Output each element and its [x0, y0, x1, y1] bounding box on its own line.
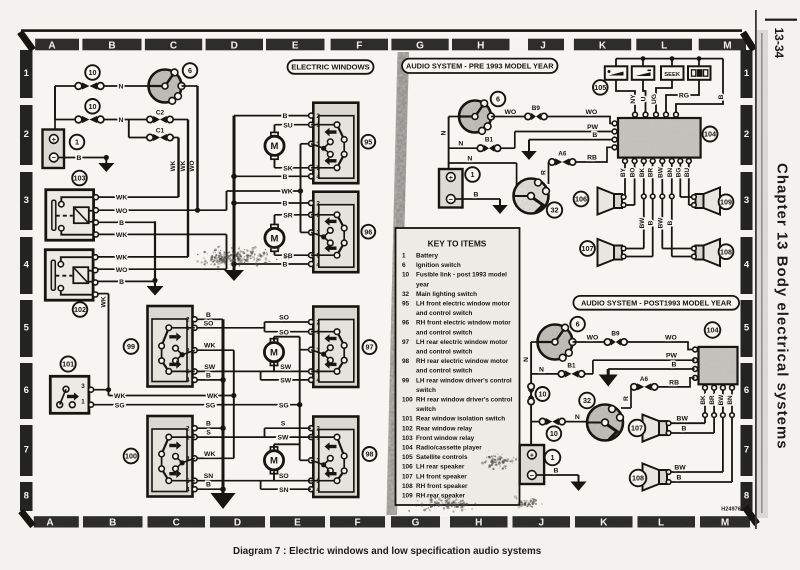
- svg-text:B: B: [77, 155, 82, 162]
- svg-text:BW: BW: [657, 217, 664, 229]
- svg-text:−: −: [52, 153, 57, 162]
- svg-text:4: 4: [24, 260, 30, 271]
- svg-text:1: 1: [744, 68, 750, 79]
- svg-text:1: 1: [81, 399, 85, 406]
- svg-text:99: 99: [127, 342, 135, 351]
- svg-text:108: 108: [720, 247, 732, 256]
- svg-text:98: 98: [366, 450, 374, 459]
- svg-text:97: 97: [366, 343, 374, 352]
- svg-text:103: 103: [74, 174, 86, 183]
- svg-text:97: 97: [402, 339, 410, 346]
- svg-text:WK: WK: [204, 343, 215, 350]
- svg-text:10: 10: [550, 429, 558, 438]
- svg-text:M: M: [270, 456, 278, 467]
- svg-text:6: 6: [188, 66, 192, 75]
- svg-text:B: B: [677, 475, 682, 482]
- svg-text:10: 10: [402, 272, 410, 279]
- svg-text:BN: BN: [667, 168, 674, 178]
- svg-text:5: 5: [24, 323, 30, 334]
- svg-text:WO: WO: [189, 160, 196, 171]
- svg-text:6: 6: [24, 385, 29, 396]
- svg-text:RH front speaker: RH front speaker: [416, 483, 468, 490]
- svg-text:BR: BR: [648, 168, 655, 178]
- svg-text:WO: WO: [504, 109, 516, 116]
- svg-text:2: 2: [186, 317, 190, 324]
- svg-text:SG: SG: [205, 402, 215, 409]
- svg-text:106: 106: [402, 464, 413, 471]
- svg-text:R: R: [540, 170, 547, 175]
- svg-text:B: B: [206, 312, 211, 319]
- svg-text:KEY TO ITEMS: KEY TO ITEMS: [428, 239, 487, 249]
- svg-text:Rear window isolation switch: Rear window isolation switch: [416, 416, 505, 423]
- svg-text:+: +: [449, 173, 454, 182]
- svg-text:WK: WK: [116, 195, 127, 202]
- svg-text:M: M: [270, 348, 278, 359]
- svg-text:B: B: [667, 220, 674, 225]
- svg-text:S: S: [206, 430, 211, 437]
- svg-text:B1: B1: [567, 362, 576, 369]
- svg-text:B: B: [681, 426, 686, 433]
- svg-text:A6: A6: [640, 376, 649, 383]
- svg-text:2: 2: [744, 129, 749, 140]
- svg-text:UG: UG: [651, 94, 658, 104]
- svg-text:6: 6: [402, 262, 406, 269]
- svg-text:WK: WK: [101, 296, 108, 307]
- svg-text:SW: SW: [278, 435, 290, 442]
- svg-text:7: 7: [744, 445, 749, 456]
- svg-text:2: 2: [24, 129, 29, 140]
- svg-text:Fusible link - post 1993 model: Fusible link - post 1993 model: [416, 272, 507, 279]
- svg-text:105: 105: [594, 83, 606, 92]
- svg-text:and control switch: and control switch: [416, 329, 473, 336]
- svg-text:M: M: [271, 233, 279, 244]
- svg-text:32: 32: [583, 396, 591, 405]
- svg-text:WK: WK: [170, 160, 177, 171]
- svg-text:SK: SK: [283, 165, 293, 172]
- svg-text:BU: BU: [684, 168, 691, 178]
- svg-text:Satellite controls: Satellite controls: [416, 454, 468, 461]
- svg-text:96: 96: [402, 320, 410, 327]
- svg-text:B: B: [119, 279, 124, 286]
- svg-text:4: 4: [316, 261, 320, 268]
- svg-text:BW: BW: [718, 394, 725, 406]
- svg-text:Battery: Battery: [416, 253, 438, 260]
- svg-text:SW: SW: [280, 378, 292, 385]
- svg-text:N: N: [539, 366, 544, 373]
- svg-text:LH front electric window motor: LH front electric window motor: [416, 301, 511, 308]
- svg-text:N: N: [467, 156, 472, 163]
- svg-text:BW: BW: [639, 217, 646, 229]
- svg-text:B: B: [283, 174, 288, 181]
- svg-text:N: N: [575, 414, 580, 421]
- svg-text:LH rear window driver's contro: LH rear window driver's control: [416, 377, 512, 384]
- svg-text:Rear window relay: Rear window relay: [416, 425, 473, 432]
- svg-text:Radio/cassette player: Radio/cassette player: [416, 445, 482, 452]
- svg-text:104: 104: [704, 130, 716, 139]
- svg-text:7: 7: [24, 445, 29, 456]
- svg-text:3: 3: [81, 383, 85, 390]
- svg-text:+: +: [52, 135, 57, 144]
- svg-text:N: N: [458, 141, 463, 148]
- svg-text:B: B: [283, 113, 288, 120]
- svg-text:SU: SU: [283, 122, 293, 129]
- svg-text:C2: C2: [156, 110, 165, 117]
- svg-text:6: 6: [744, 385, 749, 396]
- svg-text:103: 103: [402, 435, 413, 442]
- svg-text:RH front electric window motor: RH front electric window motor: [416, 320, 511, 327]
- svg-text:106: 106: [575, 195, 587, 204]
- svg-text:8: 8: [744, 491, 749, 502]
- svg-text:100: 100: [125, 452, 137, 461]
- svg-text:1: 1: [551, 453, 555, 462]
- svg-text:Diagram 7 : Electric windows a: Diagram 7 : Electric windows and low spe…: [233, 546, 542, 557]
- svg-text:1: 1: [75, 138, 79, 147]
- svg-text:4: 4: [316, 487, 320, 494]
- svg-text:B1: B1: [485, 136, 494, 143]
- svg-text:B: B: [648, 220, 655, 225]
- svg-text:LH rear speaker: LH rear speaker: [416, 464, 465, 471]
- svg-text:B: B: [206, 421, 211, 428]
- svg-text:RB: RB: [669, 379, 679, 386]
- svg-text:B: B: [206, 482, 211, 489]
- svg-text:N: N: [119, 117, 124, 124]
- svg-text:year: year: [416, 281, 430, 288]
- svg-text:−: −: [449, 195, 454, 204]
- svg-text:B: B: [592, 132, 597, 139]
- svg-text:WK: WK: [116, 255, 127, 262]
- svg-text:102: 102: [402, 425, 413, 432]
- svg-text:8: 8: [24, 491, 29, 502]
- svg-text:96: 96: [364, 227, 372, 236]
- svg-text:B: B: [119, 220, 124, 227]
- svg-text:SO: SO: [279, 473, 289, 480]
- svg-text:RB: RB: [587, 155, 597, 162]
- svg-text:N: N: [441, 130, 448, 135]
- svg-text:WO: WO: [585, 109, 597, 116]
- svg-text:2: 2: [316, 426, 320, 433]
- svg-text:1: 1: [24, 68, 30, 79]
- svg-text:SO: SO: [279, 329, 289, 336]
- svg-text:4: 4: [186, 377, 190, 384]
- svg-text:Ignition switch: Ignition switch: [416, 262, 461, 269]
- svg-text:WK: WK: [116, 232, 127, 239]
- svg-text:B: B: [474, 192, 479, 199]
- svg-text:4: 4: [316, 174, 320, 181]
- svg-text:BR: BR: [709, 395, 716, 405]
- svg-text:107: 107: [582, 244, 594, 253]
- svg-text:LH front speaker: LH front speaker: [416, 473, 467, 480]
- svg-text:SR: SR: [283, 212, 293, 219]
- svg-text:1: 1: [402, 253, 406, 260]
- svg-text:3: 3: [744, 195, 749, 206]
- svg-text:switch: switch: [416, 387, 436, 394]
- svg-text:WO: WO: [116, 208, 128, 215]
- svg-text:105: 105: [402, 454, 413, 461]
- svg-text:BN: BN: [727, 395, 734, 405]
- svg-text:BW: BW: [674, 465, 686, 472]
- svg-text:2: 2: [316, 200, 320, 207]
- svg-text:PW: PW: [587, 124, 599, 131]
- svg-text:−: −: [530, 471, 535, 480]
- svg-text:BK: BK: [700, 395, 707, 405]
- svg-text:B9: B9: [532, 105, 541, 112]
- svg-text:RG: RG: [679, 93, 689, 100]
- svg-text:AUDIO SYSTEM - PRE 1993 MODEL: AUDIO SYSTEM - PRE 1993 MODEL YEAR: [406, 62, 554, 71]
- svg-text:N: N: [119, 84, 124, 91]
- svg-text:BW: BW: [657, 166, 664, 178]
- svg-text:BY: BY: [620, 167, 627, 177]
- svg-text:95: 95: [364, 137, 372, 146]
- svg-text:10: 10: [89, 68, 97, 77]
- svg-text:1: 1: [471, 170, 475, 179]
- svg-text:B: B: [206, 372, 211, 379]
- svg-text:WK: WK: [207, 393, 218, 400]
- svg-text:SN: SN: [279, 487, 289, 494]
- svg-text:SO: SO: [279, 315, 289, 322]
- svg-text:101: 101: [62, 360, 74, 369]
- svg-text:5: 5: [744, 323, 750, 334]
- svg-text:LH rear electric window motor: LH rear electric window motor: [416, 339, 508, 346]
- svg-text:6: 6: [496, 95, 500, 104]
- svg-text:Main lighting switch: Main lighting switch: [416, 291, 477, 298]
- svg-text:108: 108: [402, 483, 413, 490]
- svg-text:WK: WK: [281, 189, 292, 196]
- svg-text:S: S: [281, 421, 286, 428]
- svg-text:98: 98: [402, 358, 410, 365]
- svg-text:B: B: [283, 262, 288, 269]
- svg-text:B: B: [672, 362, 677, 369]
- svg-text:109: 109: [402, 493, 413, 500]
- svg-text:RH rear window driver's contro: RH rear window driver's control: [416, 397, 513, 404]
- svg-text:B: B: [718, 94, 725, 99]
- svg-text:2: 2: [316, 113, 320, 120]
- svg-text:32: 32: [551, 206, 559, 215]
- svg-text:100: 100: [402, 397, 413, 404]
- svg-text:switch: switch: [416, 406, 436, 413]
- svg-text:B: B: [554, 468, 559, 475]
- svg-text:ELECTRIC WINDOWS: ELECTRIC WINDOWS: [291, 63, 369, 72]
- svg-text:WK: WK: [114, 393, 125, 400]
- svg-text:SW: SW: [280, 364, 292, 371]
- svg-text:99: 99: [402, 377, 410, 384]
- svg-text:B: B: [283, 201, 288, 208]
- svg-text:95: 95: [402, 301, 410, 308]
- svg-text:WO: WO: [665, 335, 677, 342]
- svg-text:and control switch: and control switch: [416, 368, 473, 375]
- svg-text:104: 104: [402, 445, 413, 452]
- svg-text:SG: SG: [115, 402, 125, 409]
- svg-text:WO: WO: [587, 335, 599, 342]
- svg-text:10: 10: [89, 102, 97, 111]
- svg-text:WK: WK: [180, 160, 187, 171]
- svg-text:and control switch: and control switch: [416, 349, 473, 356]
- svg-text:BG: BG: [675, 168, 682, 178]
- svg-text:PW: PW: [666, 353, 678, 360]
- svg-text:107: 107: [402, 473, 413, 480]
- svg-text:B9: B9: [611, 331, 620, 338]
- svg-text:AUDIO SYSTEM - POST1993 MODEL: AUDIO SYSTEM - POST1993 MODEL YEAR: [581, 299, 732, 308]
- svg-text:WO: WO: [116, 267, 128, 274]
- svg-text:104: 104: [707, 326, 719, 335]
- svg-text:SEEK: SEEK: [664, 72, 681, 78]
- svg-text:Front window relay: Front window relay: [416, 435, 475, 442]
- svg-text:SN: SN: [204, 473, 214, 480]
- svg-text:32: 32: [402, 291, 410, 298]
- svg-text:107: 107: [631, 424, 643, 433]
- svg-text:10: 10: [539, 390, 547, 399]
- svg-text:108: 108: [632, 474, 644, 483]
- svg-text:NY: NY: [630, 94, 637, 104]
- svg-text:A6: A6: [558, 151, 567, 158]
- svg-text:WK: WK: [204, 451, 215, 458]
- svg-text:and control switch: and control switch: [416, 310, 473, 317]
- svg-text:SG: SG: [279, 402, 289, 409]
- svg-text:3: 3: [24, 195, 29, 206]
- svg-text:SW: SW: [204, 364, 216, 371]
- svg-text:U: U: [641, 96, 648, 101]
- svg-text:C1: C1: [156, 128, 165, 135]
- svg-text:BK: BK: [639, 168, 646, 178]
- svg-text:102: 102: [74, 305, 86, 314]
- svg-text:13-34: 13-34: [772, 28, 786, 59]
- svg-text:RH rear electric window motor: RH rear electric window motor: [416, 358, 509, 365]
- svg-text:6: 6: [576, 320, 580, 329]
- svg-text:109: 109: [720, 197, 732, 206]
- svg-text:BW: BW: [677, 416, 689, 423]
- svg-text:2: 2: [186, 426, 190, 433]
- svg-text:SO: SO: [204, 320, 214, 327]
- svg-text:2: 2: [316, 319, 320, 326]
- svg-text:M: M: [271, 141, 279, 152]
- svg-text:101: 101: [402, 416, 413, 423]
- svg-text:RH rear speaker: RH rear speaker: [416, 493, 466, 500]
- svg-text:4: 4: [186, 487, 190, 494]
- svg-text:4: 4: [316, 377, 320, 384]
- svg-text:H24976: H24976: [721, 507, 741, 513]
- svg-text:BO: BO: [630, 168, 637, 178]
- svg-text:+: +: [530, 450, 535, 459]
- svg-text:N: N: [523, 357, 530, 362]
- svg-text:4: 4: [744, 260, 750, 271]
- svg-text:Chapter 13 Body electrical sys: Chapter 13 Body electrical systems: [774, 163, 791, 450]
- svg-text:R: R: [623, 396, 630, 401]
